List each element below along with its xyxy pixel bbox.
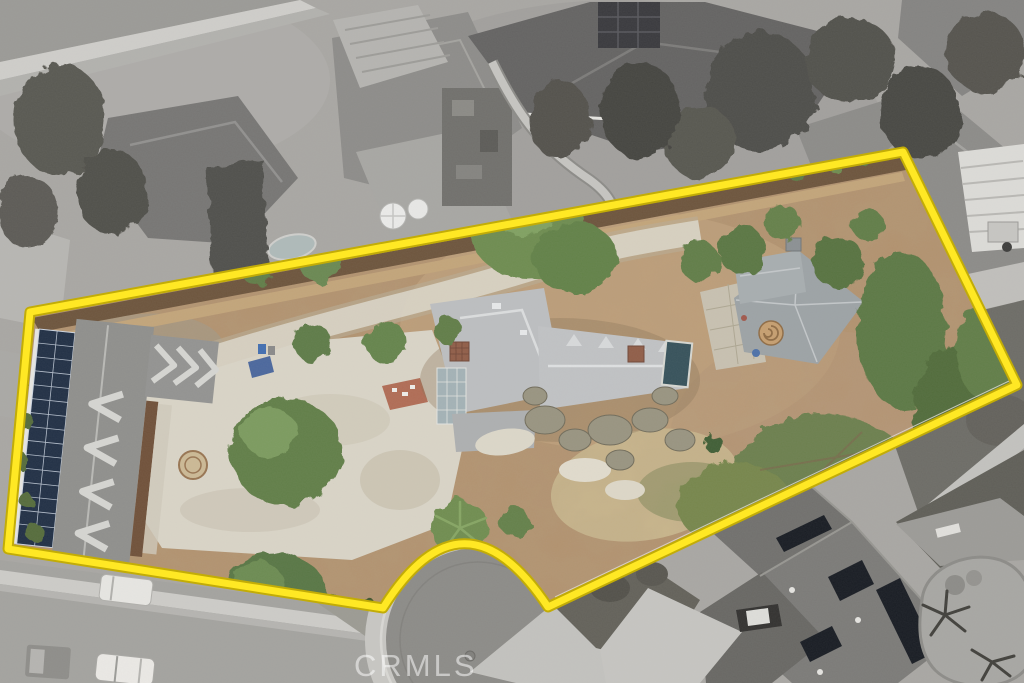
aerial-photo-canvas: CRMLS bbox=[0, 0, 1024, 683]
aerial-photo: CRMLS bbox=[0, 0, 1024, 683]
watermark: CRMLS bbox=[354, 648, 478, 683]
photo-grain bbox=[0, 0, 1024, 683]
